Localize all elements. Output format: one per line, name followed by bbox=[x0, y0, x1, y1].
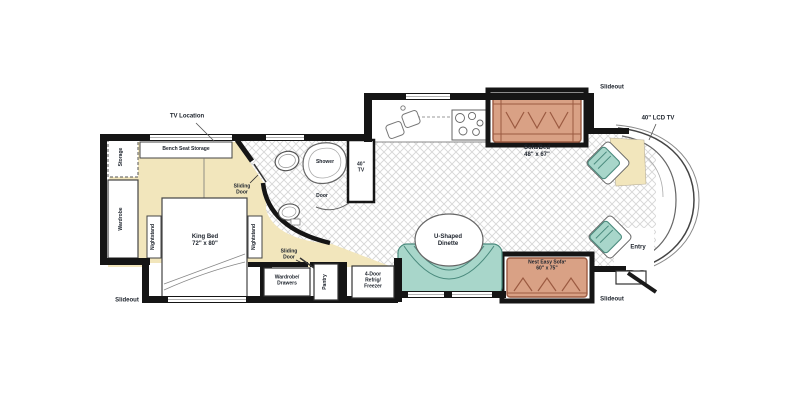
entry-door bbox=[616, 271, 656, 292]
label-slideout-br: Slideout bbox=[600, 297, 624, 304]
label-shower: Shower bbox=[316, 160, 334, 166]
label-nest-easy-sofa: Nest Easy Sofa³ 60" x 75" bbox=[528, 260, 566, 272]
label-sliding-door-2: Sliding Door bbox=[281, 249, 298, 261]
label-wardrobe: Wardrobe bbox=[119, 207, 125, 230]
label-bench-seat-storage: Bench Seat Storage bbox=[162, 147, 209, 153]
label-entry: Entry bbox=[630, 245, 645, 252]
label-slideout-bl: Slideout bbox=[115, 298, 139, 305]
label-nightstand-left: Nightstand bbox=[151, 224, 157, 250]
label-king-bed: King Bed 72" x 80" bbox=[192, 234, 218, 248]
label-40-tv: 40" TV bbox=[357, 162, 365, 174]
floorplan-drawing bbox=[0, 0, 800, 400]
label-door: Door bbox=[316, 194, 328, 200]
label-pantry: Pantry bbox=[323, 274, 329, 290]
faucet-icon bbox=[291, 219, 300, 225]
label-sofa-bed: Sofa/Bed 48" x 67" bbox=[524, 145, 550, 159]
label-nightstand-right: Nightstand bbox=[252, 224, 258, 250]
label-sliding-door-1: Sliding Door bbox=[234, 184, 251, 196]
label-storage: Storage bbox=[119, 148, 125, 167]
label-refrigerator: 4-Door Refrig/ Freezer bbox=[364, 272, 382, 289]
label-slideout-tr: Slideout bbox=[600, 85, 624, 92]
label-tv-location: TV Location bbox=[170, 114, 204, 121]
label-dinette: U-Shaped Dinette bbox=[434, 234, 462, 248]
floorplan-canvas: TV Location Bench Seat Storage Storage W… bbox=[0, 0, 800, 400]
king-bed-icon bbox=[162, 198, 247, 298]
label-lcd-tv: 40" LCD TV bbox=[642, 116, 675, 123]
cooktop-icon bbox=[452, 110, 486, 140]
label-wardrobe-drawers: Wardrobe/ Drawers bbox=[275, 275, 300, 287]
sofa-bed-icon bbox=[493, 95, 581, 142]
